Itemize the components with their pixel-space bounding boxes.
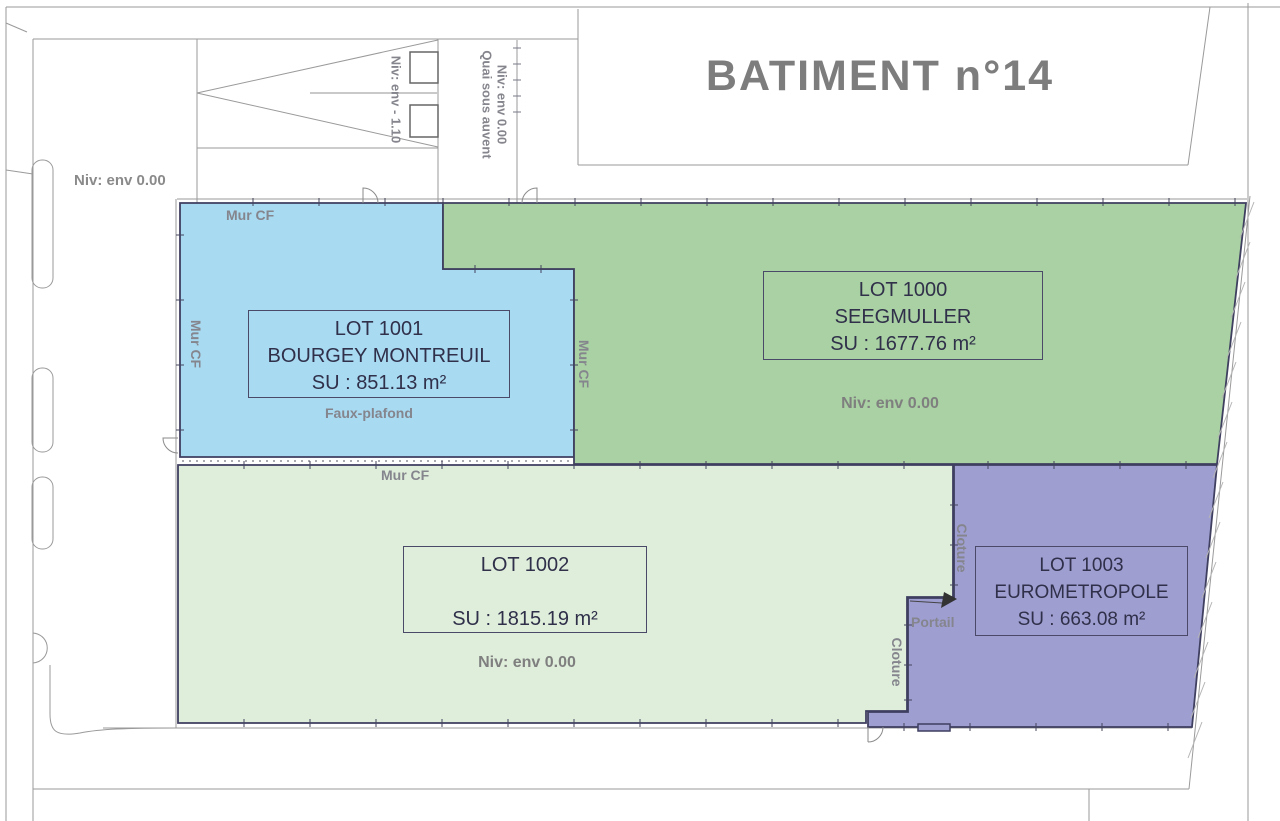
- level-label-ramp: Niv: env - 1.10: [389, 40, 404, 160]
- door-threshold: [918, 724, 950, 731]
- lot-1000-name: SEEGMULLER: [764, 304, 1042, 331]
- level-label-site: Niv: env 0.00: [74, 172, 166, 189]
- quai-level-label: Niv: env 0.00: [495, 45, 510, 165]
- lot-1002-level: Niv: env 0.00: [427, 654, 627, 672]
- lot-1003-area: SU : 663.08 m²: [976, 606, 1187, 633]
- lot-1003-info-box: LOT 1003 EUROMETROPOLE SU : 663.08 m²: [975, 546, 1188, 636]
- dock-levelers: [410, 52, 438, 137]
- lot-1001-info-box: LOT 1001 BOURGEY MONTREUIL SU : 851.13 m…: [248, 310, 510, 398]
- loading-ramp: [197, 39, 517, 203]
- page-title: BATIMENT n°14: [600, 52, 1160, 101]
- lot-1002-id: LOT 1002: [404, 552, 646, 579]
- plan-drawing: [0, 0, 1280, 821]
- portail-label: Portail: [911, 614, 955, 630]
- lot-1002-area: SU : 1815.19 m²: [404, 606, 646, 633]
- lot-1001-name: BOURGEY MONTREUIL: [249, 343, 509, 370]
- roadside-islands: [32, 160, 178, 734]
- cloture-label-lower: Cloture: [889, 632, 905, 692]
- lot-1002-info-box: LOT 1002 SU : 1815.19 m²: [403, 546, 647, 633]
- mur-cf-label-bottom: Mur CF: [381, 467, 429, 483]
- lot-1000-id: LOT 1000: [764, 277, 1042, 304]
- lot-1003-id: LOT 1003: [976, 552, 1187, 579]
- mur-cf-label-left: Mur CF: [188, 314, 204, 374]
- lot-1001-area: SU : 851.13 m²: [249, 370, 509, 397]
- quai-label: Quai sous auvent: [480, 45, 495, 165]
- faux-plafond-label: Faux-plafond: [325, 405, 413, 421]
- site-plan-canvas: BATIMENT n°14 Niv: env 0.00 Niv: env - 1…: [0, 0, 1280, 821]
- mur-cf-label-right: Mur CF: [576, 334, 592, 394]
- mur-cf-label-top: Mur CF: [226, 207, 274, 223]
- lot-1000-area: SU : 1677.76 m²: [764, 331, 1042, 358]
- lot-1001-id: LOT 1001: [249, 316, 509, 343]
- lot-1000-level: Niv: env 0.00: [790, 395, 990, 413]
- lot-1002-name: [404, 579, 646, 606]
- lot-1000-info-box: LOT 1000 SEEGMULLER SU : 1677.76 m²: [763, 271, 1043, 360]
- cloture-label-upper: Cloture: [954, 518, 970, 578]
- lot-1003-name: EUROMETROPOLE: [976, 579, 1187, 606]
